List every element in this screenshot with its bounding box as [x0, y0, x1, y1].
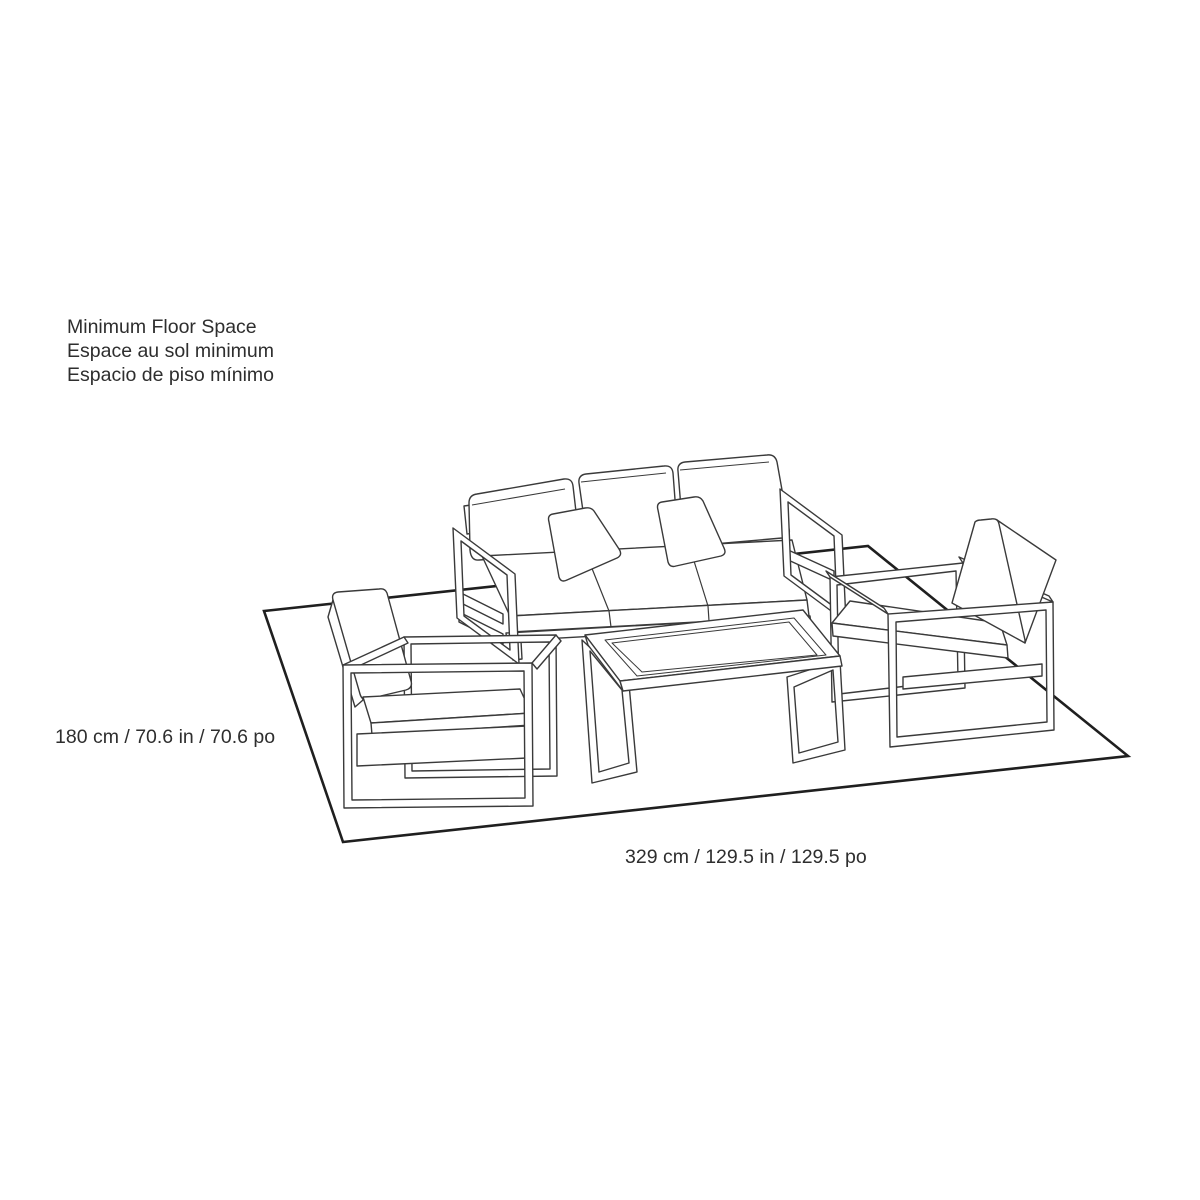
legend-line-es: Espacio de piso mínimo: [67, 364, 274, 388]
width-dimension-label: 329 cm / 129.5 in / 129.5 po: [625, 846, 867, 869]
legend: Minimum Floor Space Espace au sol minimu…: [67, 316, 274, 387]
legend-line-en: Minimum Floor Space: [67, 316, 274, 340]
floor-space-diagram: Minimum Floor Space Espace au sol minimu…: [0, 0, 1200, 1200]
furniture-line-drawing: [0, 0, 1200, 1200]
legend-line-fr: Espace au sol minimum: [67, 340, 274, 364]
depth-dimension-label: 180 cm / 70.6 in / 70.6 po: [55, 726, 275, 749]
